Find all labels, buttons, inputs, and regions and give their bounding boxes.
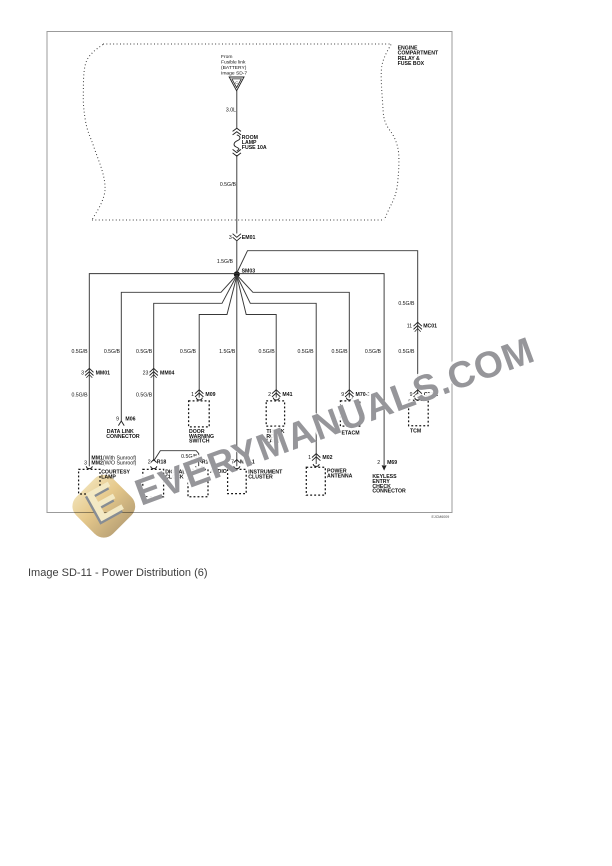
svg-text:3: 3 xyxy=(84,461,87,467)
svg-text:0.5G/B: 0.5G/B xyxy=(220,182,237,188)
svg-text:3: 3 xyxy=(81,370,84,376)
svg-text:9: 9 xyxy=(116,417,119,423)
svg-text:0.5G/B: 0.5G/B xyxy=(365,349,382,355)
svg-text:0.5G/B: 0.5G/B xyxy=(259,349,276,355)
svg-text:M69: M69 xyxy=(387,460,397,466)
svg-text:0.5G/B: 0.5G/B xyxy=(398,301,415,307)
svg-text:CONNECTOR: CONNECTOR xyxy=(106,434,140,440)
svg-text:FUSE 10A: FUSE 10A xyxy=(242,145,267,151)
svg-text:M02: M02 xyxy=(322,455,332,461)
svg-text:MM01: MM01 xyxy=(96,370,111,376)
svg-text:0.5G/B: 0.5G/B xyxy=(297,349,314,355)
svg-text:M41: M41 xyxy=(282,392,292,398)
svg-text:0.5G/B: 0.5G/B xyxy=(136,392,153,398)
svg-text:1.5G/B: 1.5G/B xyxy=(217,259,234,265)
svg-text:TCM: TCM xyxy=(410,429,421,435)
svg-text:SM03: SM03 xyxy=(242,269,256,275)
svg-text:EJCM6009: EJCM6009 xyxy=(432,515,450,519)
svg-text:0.5G/B: 0.5G/B xyxy=(71,392,88,398)
svg-text:MC01: MC01 xyxy=(423,324,437,330)
svg-text:2: 2 xyxy=(268,392,271,398)
svg-text:FUSE BOX: FUSE BOX xyxy=(398,61,425,67)
svg-text:3: 3 xyxy=(229,235,232,241)
svg-text:MM04: MM04 xyxy=(160,370,175,376)
svg-text:0.5G/B: 0.5G/B xyxy=(180,349,197,355)
svg-text:CLUSTER: CLUSTER xyxy=(248,474,273,480)
svg-text:0.5G/B: 0.5G/B xyxy=(398,349,415,355)
svg-text:1: 1 xyxy=(191,392,194,398)
svg-text:(BATTERY): (BATTERY) xyxy=(221,65,247,71)
svg-text:Image SD-11 - Power Distributi: Image SD-11 - Power Distribution (6) xyxy=(28,567,208,579)
svg-text:Fusible link: Fusible link xyxy=(221,60,246,66)
svg-text:From: From xyxy=(221,54,232,60)
svg-text:C: C xyxy=(235,81,238,85)
svg-text:23: 23 xyxy=(143,370,149,376)
svg-text:ANTENNA: ANTENNA xyxy=(327,473,353,479)
svg-text:M09: M09 xyxy=(205,392,215,398)
svg-text:3.0L: 3.0L xyxy=(226,108,236,114)
svg-text:2: 2 xyxy=(377,460,380,466)
svg-text:0.5G/B: 0.5G/B xyxy=(104,349,121,355)
svg-text:CONNECTOR: CONNECTOR xyxy=(372,489,406,495)
svg-text:0.5G/B: 0.5G/B xyxy=(71,349,88,355)
svg-text:11: 11 xyxy=(407,324,412,330)
svg-text:MM2(W/O Sunroof): MM2(W/O Sunroof) xyxy=(91,461,136,467)
svg-text:1: 1 xyxy=(308,455,311,461)
svg-text:0.5G/B: 0.5G/B xyxy=(331,349,348,355)
svg-text:EM01: EM01 xyxy=(242,235,256,241)
svg-text:Image SD-7: Image SD-7 xyxy=(221,70,247,76)
svg-text:0.5G/B: 0.5G/B xyxy=(136,349,153,355)
svg-text:1.5G/B: 1.5G/B xyxy=(219,349,236,355)
svg-text:M06: M06 xyxy=(125,417,135,423)
